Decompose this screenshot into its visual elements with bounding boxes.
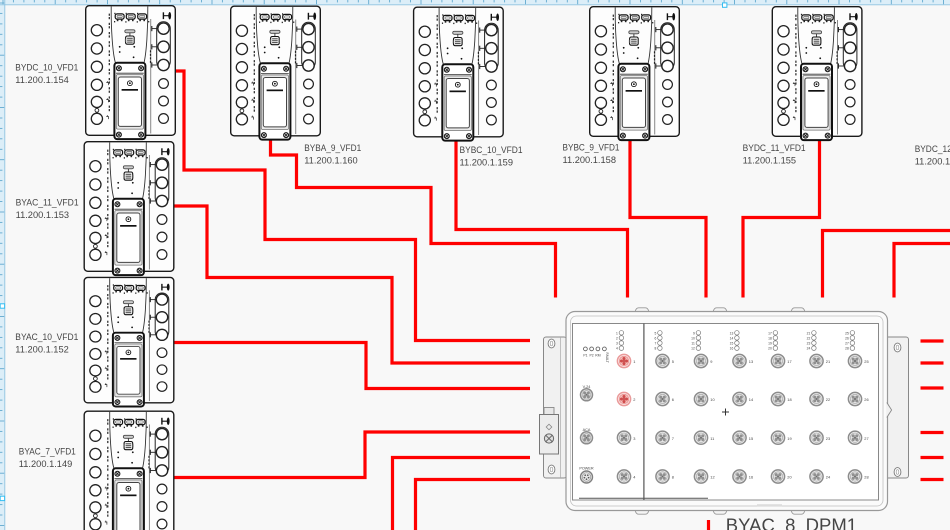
- svg-text:BYDC_12_VFD1: BYDC_12_VFD1: [915, 144, 950, 155]
- svg-text:16: 16: [749, 475, 753, 480]
- svg-text:BYBC_9_VFD1: BYBC_9_VFD1: [563, 143, 620, 154]
- svg-text:25: 25: [845, 331, 849, 335]
- svg-text:24: 24: [807, 347, 811, 351]
- svg-text:11.200.1.153: 11.200.1.153: [16, 210, 70, 221]
- svg-text:18: 18: [787, 397, 791, 402]
- svg-text:16: 16: [730, 347, 734, 351]
- svg-text:9: 9: [693, 331, 695, 335]
- svg-text:BYAC_10_VFD1: BYAC_10_VFD1: [15, 332, 78, 343]
- svg-text:26: 26: [845, 336, 849, 340]
- svg-text:14: 14: [730, 336, 734, 340]
- svg-text:17: 17: [768, 331, 772, 335]
- svg-text:BYAC_8_DPM1: BYAC_8_DPM1: [726, 515, 857, 530]
- svg-text:11.200.1.159: 11.200.1.159: [460, 158, 514, 169]
- svg-text:13: 13: [749, 359, 753, 364]
- svg-text:21: 21: [826, 359, 830, 364]
- svg-text:9: 9: [710, 359, 712, 364]
- svg-text:BYAC_11_VFD1: BYAC_11_VFD1: [16, 197, 79, 208]
- svg-text:4: 4: [616, 347, 618, 351]
- svg-text:11.200.1.157: 11.200.1.157: [915, 157, 950, 168]
- svg-text:19: 19: [768, 342, 772, 346]
- svg-text:7: 7: [672, 436, 674, 441]
- svg-text:5: 5: [654, 331, 656, 335]
- svg-text:2: 2: [633, 397, 635, 402]
- svg-text:19: 19: [787, 436, 791, 441]
- svg-text:17: 17: [787, 359, 791, 364]
- svg-text:10: 10: [691, 336, 695, 340]
- svg-text:23: 23: [826, 436, 830, 441]
- svg-text:3: 3: [616, 342, 618, 346]
- svg-text:15: 15: [749, 436, 753, 441]
- svg-text:28: 28: [845, 347, 849, 351]
- svg-text:P1: P1: [583, 354, 587, 358]
- svg-text:27: 27: [864, 436, 868, 441]
- svg-text:11.200.1.160: 11.200.1.160: [304, 156, 358, 167]
- svg-text:12: 12: [710, 475, 714, 480]
- svg-text:18: 18: [768, 336, 772, 340]
- svg-text:15: 15: [730, 342, 734, 346]
- svg-text:22: 22: [826, 397, 830, 402]
- svg-text:RM: RM: [595, 354, 600, 358]
- svg-text:6: 6: [654, 336, 656, 340]
- svg-text:11.200.1.158: 11.200.1.158: [563, 155, 617, 166]
- svg-text:BYAC_7_VFD1: BYAC_7_VFD1: [19, 446, 76, 457]
- svg-text:3: 3: [633, 436, 635, 441]
- svg-text:BYDC_10_VFD1: BYDC_10_VFD1: [15, 62, 78, 73]
- svg-text:20: 20: [768, 347, 772, 351]
- svg-text:POWER: POWER: [579, 467, 594, 471]
- svg-text:25: 25: [864, 359, 868, 364]
- svg-text:11: 11: [691, 342, 695, 346]
- svg-text:11.200.1.155: 11.200.1.155: [743, 155, 797, 166]
- svg-text:1: 1: [616, 331, 618, 335]
- svg-text:12: 12: [691, 347, 695, 351]
- svg-text:22: 22: [807, 336, 811, 340]
- svg-text:5: 5: [672, 359, 674, 364]
- svg-text:7: 7: [654, 342, 656, 346]
- svg-text:27: 27: [845, 342, 849, 346]
- svg-text:FAULT: FAULT: [605, 353, 609, 363]
- svg-text:P2: P2: [590, 354, 594, 358]
- svg-text:11: 11: [710, 436, 714, 441]
- svg-text:28: 28: [864, 475, 868, 480]
- svg-text:11.200.1.154: 11.200.1.154: [15, 75, 69, 86]
- svg-text:21: 21: [807, 331, 811, 335]
- svg-text:13: 13: [730, 331, 734, 335]
- svg-text:BYBC_10_VFD1: BYBC_10_VFD1: [460, 145, 523, 156]
- svg-text:8: 8: [654, 347, 656, 351]
- svg-text:8: 8: [672, 475, 674, 480]
- svg-text:23: 23: [807, 342, 811, 346]
- svg-text:11.200.1.152: 11.200.1.152: [15, 345, 69, 356]
- svg-text:1: 1: [633, 359, 635, 364]
- svg-text:26: 26: [864, 397, 868, 402]
- svg-text:BYDC_11_VFD1: BYDC_11_VFD1: [743, 143, 806, 154]
- svg-text:2: 2: [616, 336, 618, 340]
- svg-text:6: 6: [672, 397, 674, 402]
- svg-text:BYBA_9_VFD1: BYBA_9_VFD1: [304, 143, 361, 154]
- svg-text:11.200.1.149: 11.200.1.149: [19, 459, 73, 470]
